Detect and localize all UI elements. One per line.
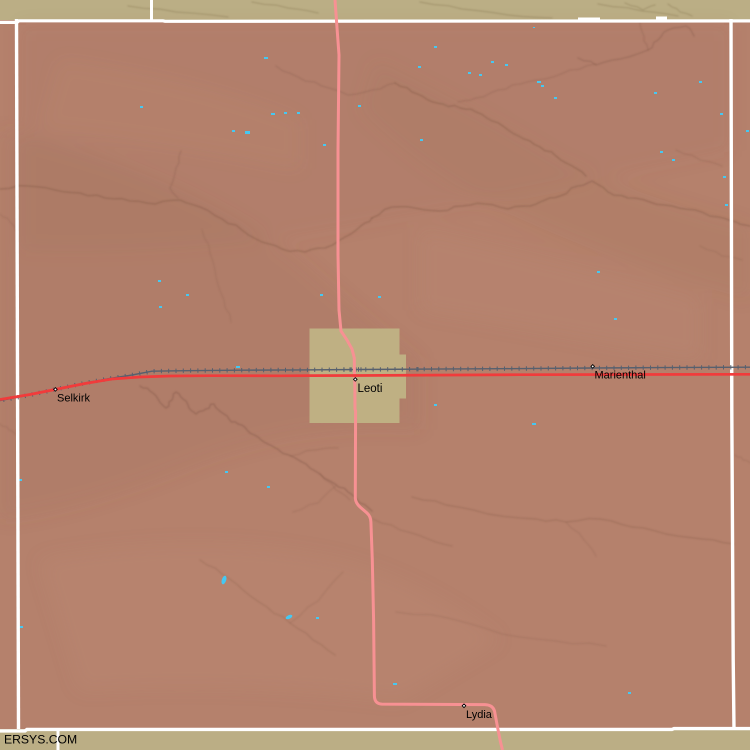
svg-text:Lydia: Lydia [466, 709, 493, 721]
svg-text:Marienthal: Marienthal [595, 370, 646, 382]
svg-text:Selkirk: Selkirk [57, 393, 91, 405]
svg-text:ERSYS.COM: ERSYS.COM [4, 733, 77, 747]
svg-text:Leoti: Leoti [358, 383, 383, 395]
